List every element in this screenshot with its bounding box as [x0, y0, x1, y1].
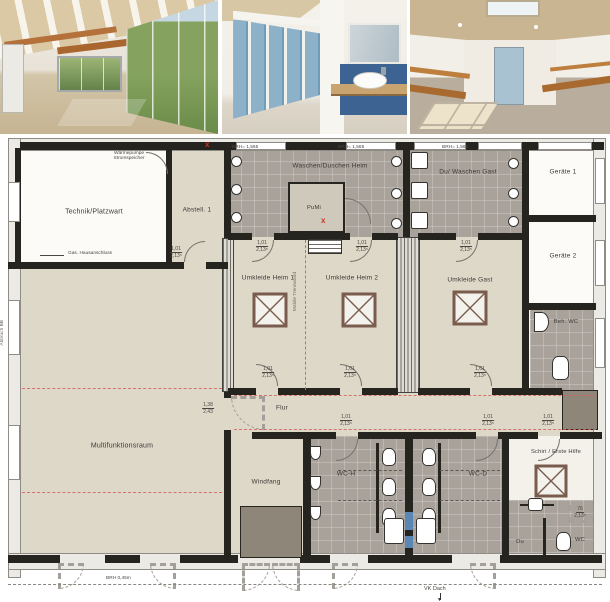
- skylight-icon: [341, 292, 377, 328]
- room-multifunktionsraum: [14, 266, 228, 558]
- red-x-marker: x: [205, 140, 209, 149]
- door-label-wide: 1,382,43: [202, 402, 214, 416]
- toilet-icon: [556, 532, 571, 551]
- shower-head-icon: [231, 212, 242, 223]
- wall-segment: [500, 555, 602, 563]
- room-label-du: Du: [516, 539, 524, 545]
- room-label-wc: WC: [575, 537, 585, 543]
- wall-segment: [492, 388, 562, 395]
- door-label-narrow: 762,13⁵: [574, 506, 586, 520]
- room-label-wc-h: WC-H: [337, 471, 356, 478]
- window-opening: [595, 318, 605, 368]
- wall-segment: [278, 388, 340, 395]
- photo2-mirror: [348, 23, 402, 65]
- window-opening: [478, 142, 522, 150]
- door-label: 1,012,13⁵: [482, 414, 494, 428]
- room-label-multifunktionsraum: Multifunktionsraum: [91, 443, 153, 450]
- shower-head-icon: [508, 188, 519, 199]
- exterior-door-arc: [58, 563, 84, 589]
- wall-segment: [372, 233, 398, 240]
- wash-trough-icon: [308, 239, 342, 254]
- red-dashed-line: [234, 429, 596, 430]
- wall-segment: [286, 142, 346, 150]
- red-dashed-line: [234, 395, 596, 396]
- photo-multifunction-room: [0, 0, 218, 134]
- red-x-marker: x: [321, 216, 325, 225]
- room-geraete1: [530, 148, 596, 218]
- door-label: 1,012,13⁵: [344, 366, 356, 380]
- skylight-icon: [252, 292, 288, 328]
- wall-segment: [529, 215, 596, 222]
- floorplan-sheet: Mobile Trennwand Abbruch BB x x Technik/…: [0, 0, 610, 602]
- brh-bottom-note: BRH 0,45m: [106, 576, 131, 581]
- stall-line: [338, 500, 402, 501]
- toilet-icon: [422, 448, 436, 466]
- room-label-flur: Flur: [276, 405, 288, 412]
- washbasin-icon: [416, 518, 436, 544]
- wall-segment: [252, 432, 336, 439]
- waermepumpe-note: Wärmepumpe Stromspeicher: [100, 151, 158, 161]
- room-label-umkleide-heim1: Umkleide Heim 1: [242, 275, 295, 282]
- window-opening: [538, 142, 592, 150]
- washbasin-icon: [534, 312, 549, 332]
- exterior-door-arc: [332, 563, 358, 589]
- vk-dach-note: VK Dach: [424, 586, 446, 592]
- wall-segment: [8, 262, 184, 269]
- wall-segment: [300, 555, 330, 563]
- shaft: [562, 390, 598, 430]
- room-label-du-waschen-gast: Du/ Waschen Gast: [439, 169, 497, 176]
- shower-head-icon: [231, 156, 242, 167]
- wall-segment: [522, 148, 529, 392]
- stall-partition: [376, 443, 379, 533]
- shower-stall-icon: [411, 212, 428, 229]
- door-label: 1,012,13⁵: [262, 366, 274, 380]
- shower-head-icon: [231, 184, 242, 195]
- washbasin-icon: [528, 498, 543, 511]
- door-label: 1,012,13⁵: [460, 240, 472, 254]
- room-label-geraete2: Geräte 2: [550, 253, 577, 260]
- glass-divider: [405, 512, 413, 530]
- arrow-down-icon: ▼: [437, 597, 442, 602]
- door-label: 1,012,13⁵: [256, 240, 268, 254]
- brh-note: BRH= 1,565: [232, 145, 258, 150]
- room-label-umkleide-heim2: Umkleide Heim 2: [326, 275, 379, 282]
- photo1-window: [57, 56, 122, 92]
- shower-stall-icon: [411, 182, 428, 199]
- skylight-icon: [534, 464, 568, 498]
- wall-segment: [529, 303, 596, 310]
- wall-segment: [180, 555, 238, 563]
- shower-head-icon: [508, 216, 519, 227]
- wall-segment: [478, 233, 522, 240]
- room-label-beh-wc: Beh. WC: [554, 319, 579, 325]
- room-geraete2: [530, 218, 596, 306]
- toilet-icon: [382, 448, 396, 466]
- shower-head-icon: [391, 156, 402, 167]
- wall-segment: [8, 555, 60, 563]
- window-opening: [8, 425, 20, 480]
- wall-segment: [228, 388, 256, 395]
- wall-segment: [502, 436, 509, 556]
- shower-stall-icon: [411, 152, 428, 169]
- photo-washroom: [222, 0, 407, 134]
- entrance-mat: [240, 506, 302, 558]
- urinal-icon: [310, 506, 321, 520]
- wall-segment: [228, 233, 252, 240]
- skylight-icon: [452, 290, 488, 326]
- room-label-schiri: Schiri / Erste Hilfe: [531, 449, 581, 455]
- wall-segment: [206, 262, 228, 269]
- toilet-icon: [552, 356, 569, 380]
- room-label-technik: Technik/Platzwart: [65, 209, 123, 216]
- window-opening: [595, 240, 605, 286]
- exterior-door-arc: [242, 563, 270, 591]
- gas-leader-line: [40, 255, 64, 256]
- room-label-pumi: PuMi: [307, 205, 321, 211]
- exterior-door-arc: [150, 563, 176, 589]
- room-label-abstell: Abstell. 1: [183, 207, 212, 214]
- window-opening: [8, 182, 20, 222]
- toilet-icon: [422, 478, 436, 496]
- partition: [543, 518, 546, 556]
- exterior-door-arc: [272, 563, 300, 591]
- door-label: 1,012,13⁵: [542, 414, 554, 428]
- roof-edge-line: [8, 584, 602, 585]
- door-label: 1,012,13⁵: [356, 240, 368, 254]
- door-label: 1,012,13⁵: [474, 366, 486, 380]
- wall-segment: [560, 432, 602, 439]
- photo2-tap: [381, 67, 386, 75]
- stall-partition: [438, 443, 441, 533]
- red-dashed-line: [22, 388, 222, 389]
- wall-segment: [20, 142, 236, 150]
- wall-segment: [105, 555, 140, 563]
- wall-insulated: [396, 237, 420, 393]
- wall-segment: [368, 555, 452, 563]
- washbasin-icon: [384, 518, 404, 544]
- photo3-skylight: [486, 0, 540, 17]
- photo1-door: [2, 44, 24, 113]
- room-label-umkleide-gast: Umkleide Gast: [447, 277, 492, 284]
- wall-segment: [224, 430, 231, 558]
- stall-line: [440, 500, 500, 501]
- toilet-icon: [382, 478, 396, 496]
- window-opening: [8, 300, 20, 355]
- room-label-geraete1: Geräte 1: [550, 169, 577, 176]
- wall-segment: [592, 142, 604, 150]
- mobile-partition-line: [305, 240, 306, 390]
- door-label: 1,012,13⁵: [340, 414, 352, 428]
- wall-segment: [418, 388, 470, 395]
- door-label: 1,012,13⁵: [170, 246, 182, 260]
- abbruch-label: Abbruch BB: [0, 320, 5, 346]
- shower-head-icon: [391, 188, 402, 199]
- brh-note: BRH= 1,565: [442, 145, 468, 150]
- photo3-door: [494, 47, 524, 105]
- room-label-windfang: Windfang: [251, 479, 280, 486]
- wall-segment: [403, 148, 410, 237]
- red-dashed-line: [22, 492, 222, 493]
- brh-note: BRH= 1,565: [338, 145, 364, 150]
- shower-head-icon: [508, 158, 519, 169]
- wall-segment: [358, 432, 476, 439]
- wall-segment: [362, 388, 398, 395]
- exterior-door-arc: [470, 563, 496, 589]
- photo3-spotlight: [458, 23, 462, 27]
- wall-segment: [418, 233, 456, 240]
- gas-note: Gas. Hausanschluss: [68, 251, 112, 256]
- window-opening: [595, 158, 605, 204]
- urinal-icon: [310, 446, 321, 460]
- room-label-waschen-heim: Waschen/Duschen Heim: [292, 163, 367, 170]
- urinal-icon: [310, 476, 321, 490]
- room-label-wc-d: WC-D: [469, 471, 488, 478]
- shower-head-icon: [391, 218, 402, 229]
- glass-divider: [405, 536, 413, 548]
- photo-changing-room: [410, 0, 610, 134]
